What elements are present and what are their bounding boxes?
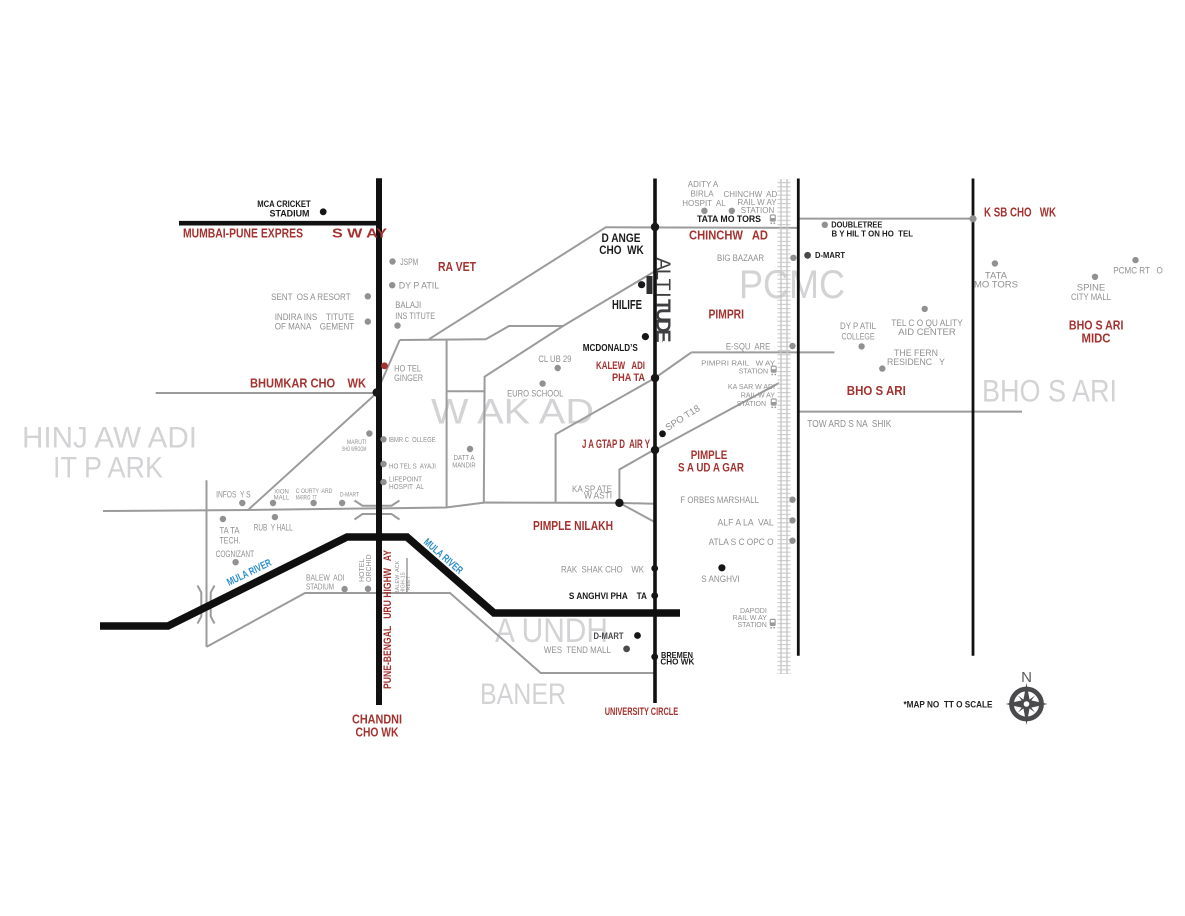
- svg-text:STADIUM: STADIUM: [270, 208, 310, 218]
- svg-text:DAPODI: DAPODI: [740, 608, 767, 615]
- svg-text:HO TEL S AYAJI: HO TEL S AYAJI: [389, 462, 436, 471]
- svg-text:AID CENTER: AID CENTER: [898, 327, 956, 338]
- svg-text:JSPM: JSPM: [400, 257, 418, 268]
- svg-text:IT P ARK: IT P ARK: [53, 452, 163, 485]
- svg-text:MO TORS: MO TORS: [974, 280, 1018, 291]
- svg-text:PHA TA: PHA TA: [612, 372, 645, 384]
- svg-text:S A UD A GAR: S A UD A GAR: [678, 461, 744, 475]
- svg-text:BIRLA: BIRLA: [690, 190, 714, 199]
- svg-text:CHINCHW AD: CHINCHW AD: [689, 228, 768, 243]
- svg-text:BANER: BANER: [480, 678, 566, 711]
- svg-text:PUNE-BENGAL URU HIGHW AY: PUNE-BENGAL URU HIGHW AY: [382, 549, 394, 689]
- svg-text:STATION: STATION: [738, 622, 767, 629]
- svg-text:COLLEGE: COLLEGE: [842, 332, 875, 343]
- svg-text:ADITY A: ADITY A: [688, 180, 719, 189]
- svg-text:EURO SCHOOL: EURO SCHOOL: [507, 389, 563, 400]
- svg-text:K SB CHO WK: K SB CHO WK: [984, 205, 1056, 220]
- svg-text:D-MART: D-MART: [815, 251, 845, 260]
- svg-text:HILIFE: HILIFE: [612, 297, 642, 312]
- svg-text:CHO WK: CHO WK: [599, 245, 644, 257]
- svg-text:S ANGHVI: S ANGHVI: [701, 574, 740, 585]
- svg-text:GINGER: GINGER: [394, 373, 423, 384]
- svg-text:BIG BAZAAR: BIG BAZAAR: [717, 253, 764, 264]
- svg-text:D ANGE: D ANGE: [602, 233, 641, 245]
- svg-text:OF MANA GEMENT: OF MANA GEMENT: [275, 321, 355, 332]
- svg-text:INFOS Y S: INFOS Y S: [216, 489, 251, 500]
- svg-text:BHUMKAR CHO WK: BHUMKAR CHO WK: [250, 376, 367, 391]
- svg-text:INS TITUTE: INS TITUTE: [395, 311, 435, 322]
- svg-text:WES TEND MALL: WES TEND MALL: [544, 645, 611, 656]
- svg-text:HOTEL: HOTEL: [359, 559, 366, 582]
- svg-text:STATION: STATION: [739, 369, 768, 376]
- svg-text:B Y HIL T ON HO TEL: B Y HIL T ON HO TEL: [832, 228, 914, 238]
- svg-text:S W AY: S W AY: [332, 227, 388, 241]
- svg-text:SENT OS A RESORT: SENT OS A RESORT: [271, 292, 351, 303]
- svg-text:ATLA S C OPC O: ATLA S C OPC O: [709, 537, 774, 548]
- svg-text:*MAP NO TT O SCALE: *MAP NO TT O SCALE: [904, 700, 993, 711]
- svg-text:TECH.: TECH.: [220, 536, 241, 547]
- svg-text:BHO S ARI: BHO S ARI: [847, 383, 906, 398]
- svg-text:PCMC: PCMC: [739, 263, 845, 307]
- svg-text:RUB Y HALL: RUB Y HALL: [254, 522, 293, 533]
- svg-text:HOSPIT AL: HOSPIT AL: [389, 482, 424, 491]
- svg-text:IBMR C OLLEGE: IBMR C OLLEGE: [389, 435, 436, 444]
- svg-text:D-MART: D-MART: [340, 492, 359, 499]
- svg-text:J A GTAP D AIR Y: J A GTAP D AIR Y: [582, 439, 650, 451]
- svg-text:CHO WK: CHO WK: [660, 657, 694, 667]
- svg-text:KA SAR W ADI: KA SAR W ADI: [728, 384, 775, 391]
- svg-text:DATT A: DATT A: [454, 455, 475, 462]
- svg-text:I: I: [652, 292, 674, 298]
- svg-text:ORCHID: ORCHID: [366, 554, 373, 582]
- svg-text:MANDIR: MANDIR: [452, 462, 476, 469]
- svg-text:STADIUM: STADIUM: [306, 581, 334, 591]
- svg-text:MALL: MALL: [274, 495, 290, 501]
- svg-text:UNIVERSITY CIRCLE: UNIVERSITY CIRCLE: [605, 706, 679, 718]
- svg-text:DY P ATIL: DY P ATIL: [840, 321, 876, 332]
- svg-text:E-SQU ARE: E-SQU ARE: [726, 342, 770, 353]
- svg-text:ˇ: ˇ: [656, 341, 662, 343]
- svg-text:CHO WK: CHO WK: [356, 725, 399, 740]
- svg-text:KALEW ADI: KALEW ADI: [596, 360, 645, 372]
- svg-text:BHO S ARI: BHO S ARI: [982, 373, 1117, 409]
- svg-text:RAK SHAK CHO WK: RAK SHAK CHO WK: [561, 565, 645, 576]
- svg-text:HOSPIT AL: HOSPIT AL: [682, 199, 726, 208]
- svg-text:RAIL W AY: RAIL W AY: [733, 615, 768, 622]
- svg-text:MIDC: MIDC: [1082, 332, 1111, 346]
- svg-text:ALF A LA VAL: ALF A LA VAL: [718, 518, 774, 529]
- svg-text:BHO S ARI: BHO S ARI: [1069, 319, 1124, 333]
- svg-text:TATA MO TORS: TATA MO TORS: [697, 214, 761, 224]
- svg-text:T: T: [652, 278, 674, 290]
- svg-text:SHO WROOM: SHO WROOM: [342, 446, 367, 453]
- svg-text:N: N: [1021, 669, 1032, 686]
- svg-text:BALAJI: BALAJI: [395, 300, 421, 311]
- svg-text:TOW ARD S NA SHIK: TOW ARD S NA SHIK: [807, 419, 891, 430]
- svg-text:RAIL W AY: RAIL W AY: [741, 393, 776, 400]
- svg-text:RA VET: RA VET: [438, 259, 476, 274]
- svg-text:CL UB 29: CL UB 29: [538, 354, 571, 365]
- svg-text:MUMBAI-PUNE EXPRES: MUMBAI-PUNE EXPRES: [183, 227, 303, 241]
- svg-text:PIMPLE NILAKH: PIMPLE NILAKH: [533, 518, 613, 533]
- svg-text:DY P ATIL: DY P ATIL: [399, 281, 440, 292]
- svg-text:W ASTI: W ASTI: [584, 491, 612, 502]
- svg-text:PIMPRI RAIL W AY: PIMPRI RAIL W AY: [701, 361, 775, 368]
- svg-text:F ORBES MARSHALL: F ORBES MARSHALL: [680, 495, 759, 506]
- svg-text:RESIDENC Y: RESIDENC Y: [887, 357, 946, 368]
- svg-text:HINJ AW ADI: HINJ AW ADI: [22, 422, 197, 455]
- svg-text:CITY MALL: CITY MALL: [1071, 292, 1111, 303]
- svg-text:MARRIO TT: MARRIO TT: [296, 495, 317, 502]
- svg-text:PCMC RT O: PCMC RT O: [1113, 266, 1163, 277]
- svg-text:STATION: STATION: [741, 206, 775, 215]
- svg-text:COGNIZANT: COGNIZANT: [216, 549, 255, 560]
- svg-text:TREET: TREET: [406, 575, 412, 594]
- svg-text:STATION: STATION: [737, 401, 766, 408]
- svg-text:PIMPRI: PIMPRI: [709, 307, 745, 322]
- svg-text:S ANGHVI PHA TA: S ANGHVI PHA TA: [569, 591, 647, 602]
- svg-text:MCDONALD’S: MCDONALD’S: [583, 343, 638, 354]
- svg-text:D-MART: D-MART: [594, 631, 624, 642]
